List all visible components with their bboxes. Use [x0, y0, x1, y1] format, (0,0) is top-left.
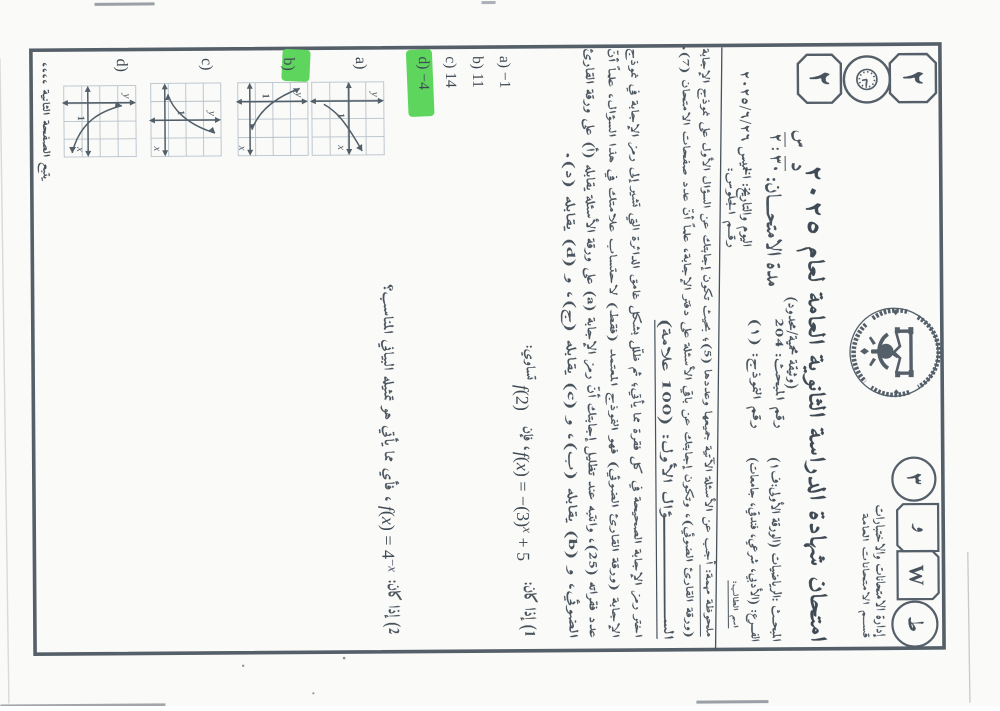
svg-text:x: x — [151, 145, 163, 151]
svg-text:x: x — [335, 144, 347, 150]
svg-text:W: W — [904, 565, 928, 586]
svg-text:x: x — [74, 146, 86, 152]
svg-text:d) −4: d) −4 — [415, 56, 432, 90]
svg-text:1: 1 — [260, 94, 271, 99]
svg-text:a) −1: a) −1 — [496, 56, 513, 89]
svg-text:1: 1 — [75, 116, 86, 121]
svg-text:b) 11: b) 11 — [469, 56, 486, 88]
svg-text:a): a) — [352, 57, 369, 70]
svg-text:d): d) — [113, 59, 130, 72]
svg-text:f(x) = −(3)x + 5: f(x) = −(3)x + 5 — [512, 452, 536, 561]
svg-text:y: y — [369, 91, 381, 97]
svg-text:y: y — [206, 110, 218, 116]
svg-text:b): b) — [280, 57, 297, 70]
svg-text:c): c) — [198, 58, 215, 71]
svg-text:y: y — [121, 93, 133, 99]
svg-text:c) 14: c) 14 — [442, 56, 459, 88]
svg-text:x: x — [236, 145, 248, 151]
svg-text:f(2): f(2) — [511, 385, 532, 411]
svg-text:y: y — [293, 91, 305, 97]
